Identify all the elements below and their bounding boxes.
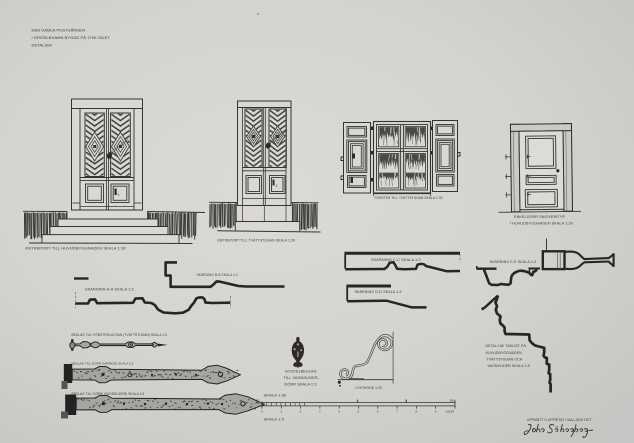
svg-text:SKÄRNING A-A SKALA 1:2: SKÄRNING A-A SKALA 1:2: [85, 288, 134, 292]
svg-text:VAGNSLIDER SKALA 1:5: VAGNSLIDER SKALA 1:5: [488, 364, 530, 368]
svg-text:UPPMÄTT O UPPRITAT I MAJ-JUNI: UPPMÄTT O UPPRITAT I MAJ-JUNI 1977: [527, 418, 592, 422]
svg-text:DEN GAMLA POSTGÅRDEN: DEN GAMLA POSTGÅRDEN: [32, 28, 86, 33]
svg-text:SKÄRNING C-C SKALA 1:2: SKÄRNING C-C SKALA 1:2: [371, 258, 421, 262]
svg-text:SKALA 1:5: SKALA 1:5: [264, 417, 285, 422]
svg-text:DÖRR SKALA 1:3: DÖRR SKALA 1:3: [285, 383, 317, 387]
svg-text:ENKELDÖRR SNICKERITYP: ENKELDÖRR SNICKERITYP: [514, 215, 566, 219]
svg-text:DETALJER: DETALJER: [32, 43, 53, 48]
svg-text:BESLAG TILL FÖNSTERLUCKAN (TVÄ: BESLAG TILL FÖNSTERLUCKAN (TVÄTTSTUGAN) …: [72, 333, 168, 337]
svg-text:FÖNSTER TILL TVÄTTSTUGAN SKAL: FÖNSTER TILL TVÄTTSTUGAN SKALA 1:30: [375, 196, 443, 200]
svg-text:SKALA 1:30: SKALA 1:30: [264, 393, 287, 398]
svg-text:50: 50: [256, 398, 260, 402]
svg-text:BESLAG TILL DÖRR (VAGNSLIDER): BESLAG TILL DÖRR (VAGNSLIDER) SKALA 1:5: [72, 392, 145, 396]
svg-text:10DM: 10DM: [446, 409, 455, 413]
svg-text:TILL VAGNSLIDER-: TILL VAGNSLIDER-: [284, 376, 320, 380]
svg-text:LYKTKROK 1:20: LYKTKROK 1:20: [356, 386, 383, 390]
svg-text:TVÄTTSTUGAN OCH: TVÄTTSTUGAN OCH: [487, 358, 523, 362]
svg-text:HUVUDBYGGNADEN: HUVUDBYGGNADEN: [486, 351, 523, 355]
svg-text:3M: 3M: [450, 398, 455, 402]
svg-text:NYCKELBESLAG: NYCKELBESLAG: [285, 370, 317, 374]
svg-text:SKÄRNING E-E SKALA 1:2: SKÄRNING E-E SKALA 1:2: [490, 260, 537, 264]
svg-text:BESLAG TILL DÖRR (MATBOD) SKAL: BESLAG TILL DÖRR (MATBOD) SKALA 1:5: [72, 362, 134, 366]
svg-text:DETALJ AV TAKLIST PÅ: DETALJ AV TAKLIST PÅ: [486, 343, 527, 348]
svg-text:SKÄRNING B-B SKALA 1:2: SKÄRNING B-B SKALA 1:2: [197, 273, 238, 277]
svg-text:SKÄRNING D-D SKALA 1:2: SKÄRNING D-D SKALA 1:2: [355, 290, 402, 294]
svg-text:ENTREPORT TILL TVÄTTSTUGAN SK: ENTREPORT TILL TVÄTTSTUGAN SKALA 1:30: [218, 239, 296, 243]
svg-text:I GRISSLEHAMN BYGGD PÅ 1790-TA: I GRISSLEHAMN BYGGD PÅ 1790-TALET: [32, 35, 111, 40]
svg-text:ENTREPORT TILL HUVUDBYGGNADEN: ENTREPORT TILL HUVUDBYGGNADEN SKALA 1:30: [26, 246, 127, 251]
svg-text:I HUVUDBYGGNADEN SKALA 1:30: I HUVUDBYGGNADEN SKALA 1:30: [510, 221, 573, 225]
